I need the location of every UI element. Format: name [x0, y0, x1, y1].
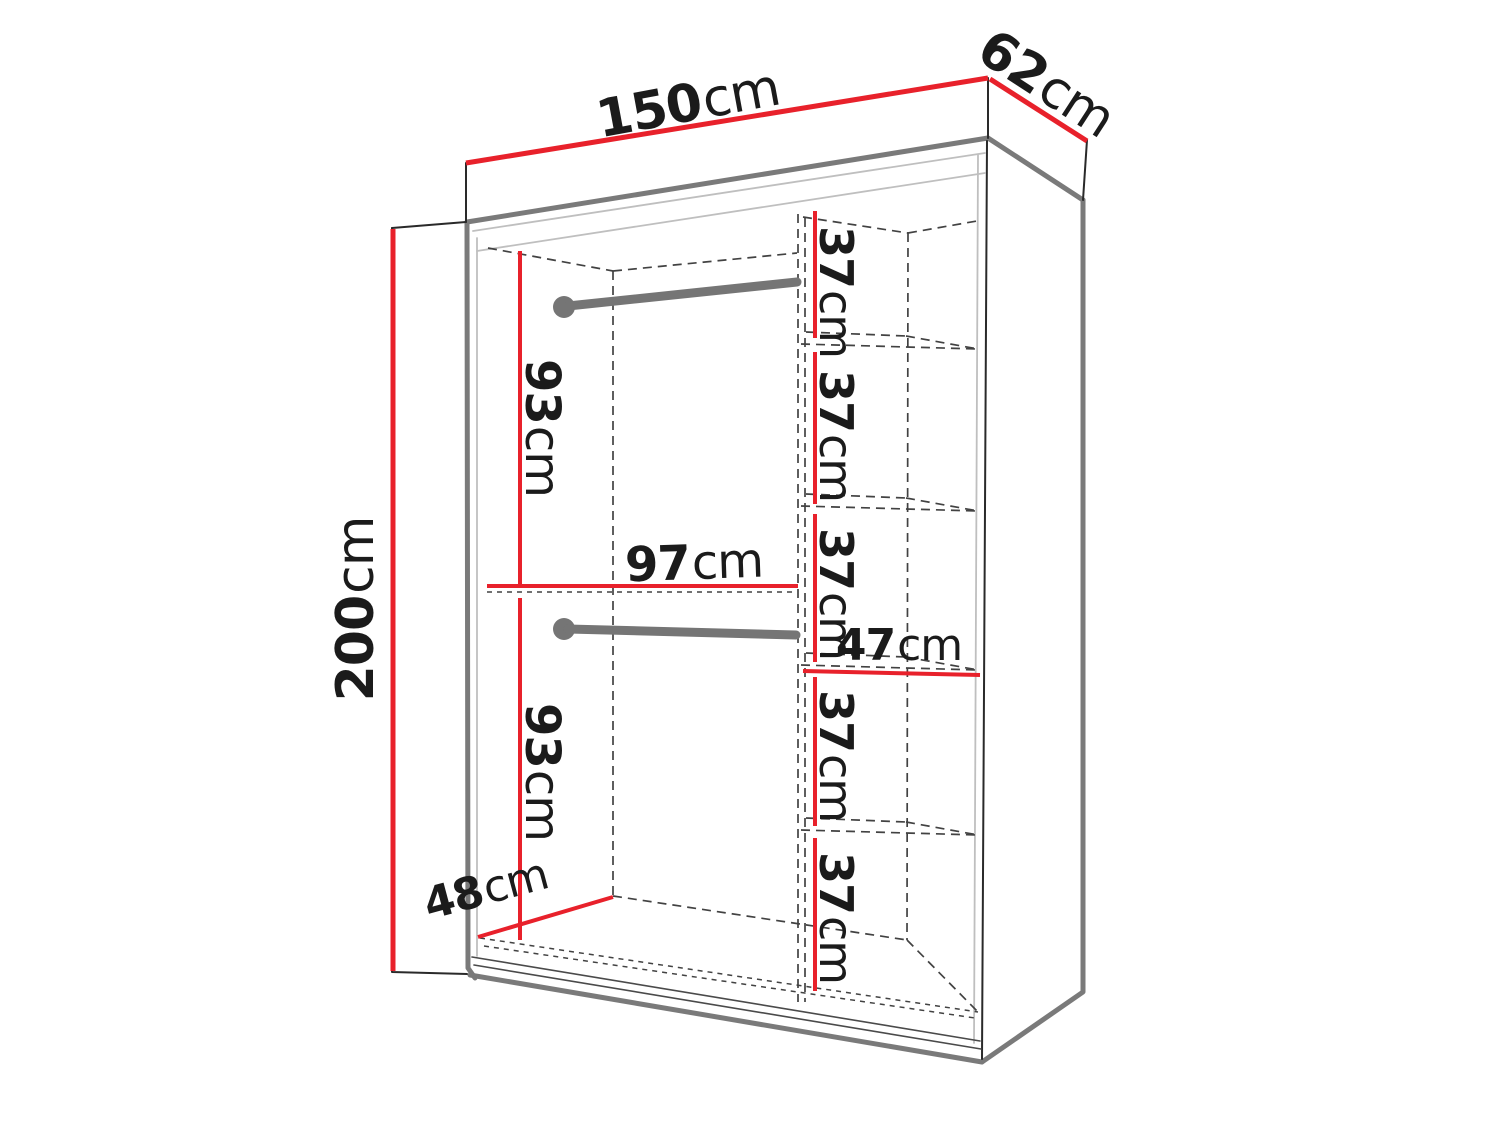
wardrobe-diagram: 150cm 62cm 200cm 93cm 93cm 97cm 48cm 47c…	[0, 0, 1500, 1125]
shelf-gap-4-value: 37	[809, 690, 863, 752]
lower-hanging-label: 93cm	[518, 703, 566, 841]
upper-hanging-unit: cm	[514, 426, 570, 497]
shelf-gap-5-unit: cm	[809, 916, 863, 984]
section-width-label: 97cm	[624, 537, 764, 590]
shelf-gap-1-value: 37	[809, 226, 863, 288]
height-label: 200cm	[330, 517, 382, 702]
shelf-gap-2-unit: cm	[809, 434, 863, 502]
shelf-gap-label-5: 37cm	[813, 852, 859, 984]
shelf-gap-label-2: 37cm	[813, 370, 859, 502]
upper-hanging-value: 93	[514, 359, 570, 424]
dim-line-shelf-47	[803, 671, 980, 675]
height-unit: cm	[326, 517, 386, 594]
shelf-gap-5-value: 37	[809, 852, 863, 914]
shelf-gap-label-3: 37cm	[813, 528, 859, 660]
shelf-width-unit: cm	[897, 620, 962, 671]
cabinet-outline-thick	[467, 138, 1083, 1062]
hanging-rail-lower	[553, 618, 796, 640]
shelf-gap-3-value: 37	[809, 528, 863, 590]
lower-hanging-value: 93	[514, 703, 570, 768]
hanging-rail-upper	[553, 282, 797, 318]
shelf-gap-2-value: 37	[809, 370, 863, 432]
upper-hanging-label: 93cm	[518, 359, 566, 497]
section-width-unit: cm	[691, 533, 764, 591]
shelf-gap-label-1: 37cm	[813, 226, 859, 358]
shelf-gap-4-unit: cm	[809, 754, 863, 822]
shelf-gap-3-unit: cm	[809, 592, 863, 660]
height-value: 200	[326, 596, 386, 702]
shelf-gap-1-unit: cm	[809, 290, 863, 358]
plinth-lines	[472, 957, 981, 1049]
section-width-value: 97	[624, 535, 691, 593]
divider-panel	[798, 214, 805, 1002]
lower-hanging-unit: cm	[514, 770, 570, 841]
shelf-gap-label-4: 37cm	[813, 690, 859, 822]
